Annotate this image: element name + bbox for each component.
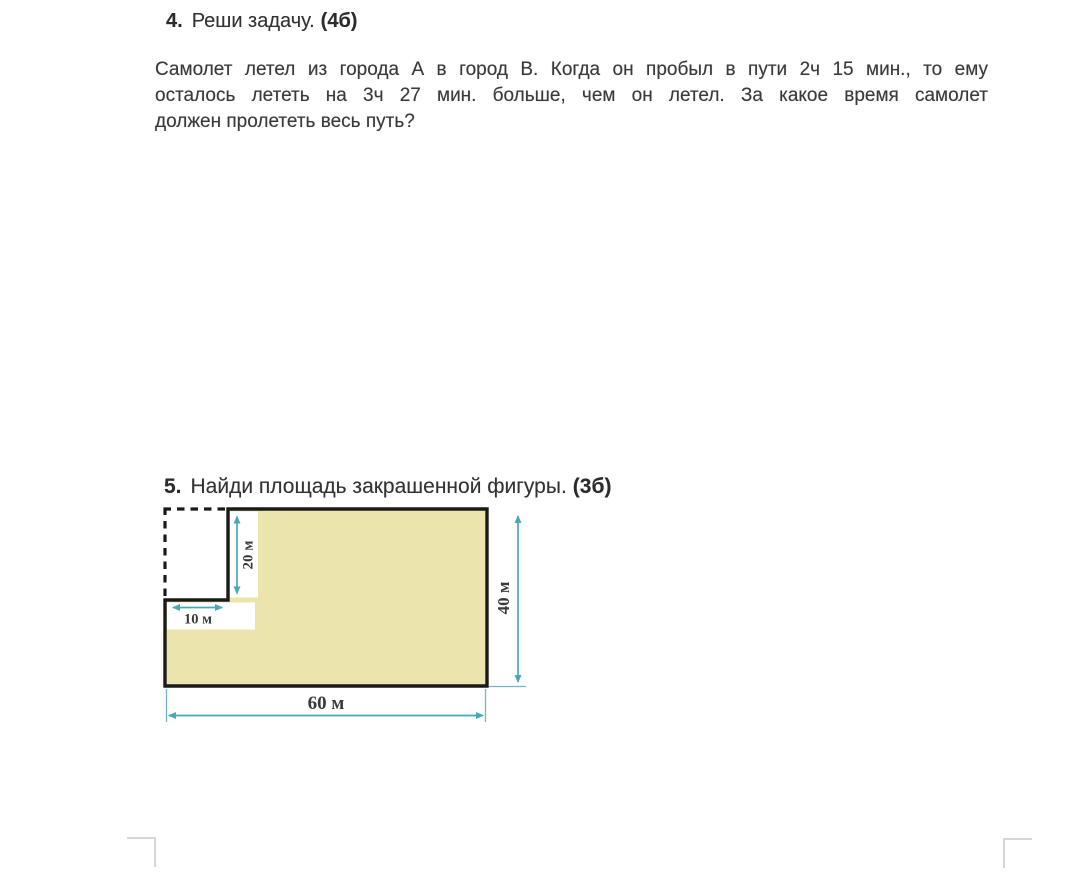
problem4-text-line3: должен пролететь весь путь? (155, 109, 988, 135)
dim-label-60m: 60 м (308, 693, 345, 714)
problem5-number: 5. (164, 475, 182, 498)
problem5-points: (3б) (573, 475, 612, 498)
problem4-header: 4.Реши задачу.(4б) (166, 10, 357, 33)
problem4-text-line2: осталось лететь на 3ч 27 мин. больше, че… (155, 83, 988, 109)
dim-label-40m: 40 м (494, 581, 513, 614)
problem4-number: 4. (166, 10, 183, 32)
worksheet-page: { "problem4": { "number": "4.", "title":… (0, 0, 1080, 887)
problem5-header: 5.Найди площадь закрашенной фигуры.(3б) (164, 475, 611, 499)
corner-mark-right (1003, 838, 1032, 868)
problem4-text-line1: Самолет летел из города А в город В. Ког… (155, 57, 988, 83)
area-figure-diagram: 20 м 10 м 40 м 60 м (153, 503, 533, 733)
corner-mark-left (127, 837, 156, 867)
problem4-title: Реши задачу. (192, 10, 315, 32)
dim-label-10m: 10 м (184, 612, 212, 628)
problem5-title: Найди площадь закрашенной фигуры. (191, 475, 567, 498)
problem4-text: Самолет летел из города А в город В. Ког… (155, 57, 988, 135)
problem4-points: (4б) (321, 10, 358, 32)
dim-label-20m: 20 м (240, 541, 256, 570)
shaded-figure (165, 509, 487, 686)
